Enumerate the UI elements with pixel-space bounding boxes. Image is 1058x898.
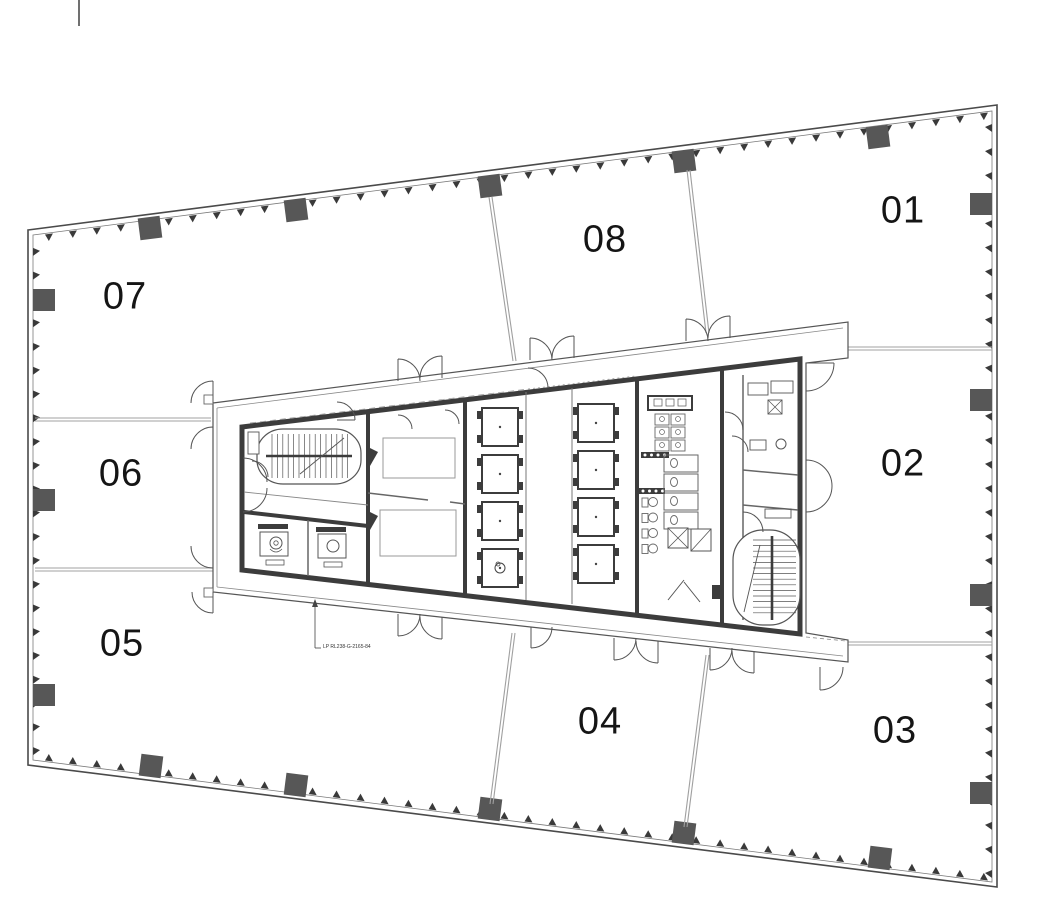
stair-west — [248, 429, 361, 484]
zone-label-08: 08 — [583, 219, 627, 262]
zone-label-02: 02 — [881, 443, 925, 486]
floor-plan-page: 01 02 03 04 05 06 07 08 LP RL238-G-2165-… — [0, 0, 1058, 898]
zone-label-05: 05 — [100, 623, 144, 666]
zone-label-07: 07 — [103, 276, 147, 319]
plan-annotation-text: LP RL238-G-2165-84 — [323, 644, 371, 650]
zone-label-01: 01 — [881, 190, 925, 233]
zone-label-03: 03 — [873, 710, 917, 753]
zone-label-06: 06 — [99, 453, 143, 496]
zone-label-04: 04 — [578, 701, 622, 744]
